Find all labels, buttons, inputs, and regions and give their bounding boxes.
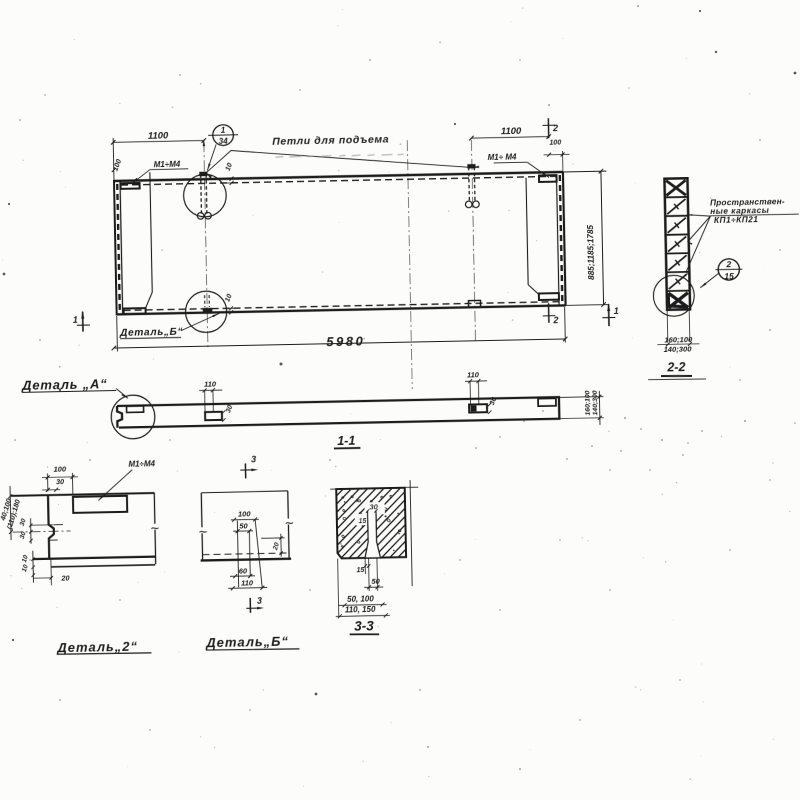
svg-text:1: 1 — [73, 315, 78, 325]
svg-text:15: 15 — [724, 271, 734, 281]
svg-text:50: 50 — [239, 521, 248, 530]
svg-text:1100: 1100 — [501, 126, 522, 137]
svg-text:110: 110 — [241, 578, 254, 587]
svg-text:140;300: 140;300 — [592, 390, 600, 415]
svg-text:М1÷ М4: М1÷ М4 — [488, 152, 518, 162]
svg-text:2: 2 — [552, 315, 558, 325]
svg-text:34: 34 — [219, 137, 229, 146]
svg-text:20: 20 — [60, 573, 69, 582]
svg-text:3: 3 — [251, 454, 256, 464]
svg-text:100: 100 — [549, 140, 561, 147]
svg-text:50: 50 — [371, 577, 380, 586]
svg-text:160;100: 160;100 — [664, 335, 693, 345]
svg-text:110: 110 — [467, 370, 480, 379]
svg-text:Деталь „А“: Деталь „А“ — [21, 376, 108, 393]
svg-text:3: 3 — [257, 596, 262, 606]
svg-text:100: 100 — [53, 465, 67, 474]
svg-text:Деталь„Б“: Деталь„Б“ — [205, 634, 289, 651]
svg-text:140;300: 140;300 — [663, 344, 692, 354]
svg-text:50, 100: 50, 100 — [347, 594, 374, 604]
svg-text:Петли для подъема: Петли для подъема — [272, 133, 389, 147]
svg-text:М1÷М4: М1÷М4 — [154, 160, 181, 170]
svg-text:2-2: 2-2 — [666, 360, 685, 374]
svg-text:885;1185;1785: 885;1185;1785 — [586, 224, 596, 280]
svg-text:1: 1 — [614, 306, 619, 316]
svg-text:110: 110 — [204, 379, 217, 388]
svg-text:15: 15 — [358, 518, 366, 525]
svg-text:М1÷М4: М1÷М4 — [128, 459, 155, 469]
svg-text:60: 60 — [239, 566, 248, 575]
svg-text:110, 150: 110, 150 — [345, 605, 376, 615]
svg-text:160;100: 160;100 — [584, 390, 592, 415]
svg-text:2: 2 — [725, 259, 731, 269]
svg-text:1-1: 1-1 — [337, 434, 355, 448]
svg-text:КП1÷КП21: КП1÷КП21 — [714, 214, 759, 225]
svg-text:5980: 5980 — [326, 333, 365, 349]
svg-text:15: 15 — [356, 567, 364, 574]
svg-text:2: 2 — [552, 123, 558, 133]
svg-text:30: 30 — [56, 477, 64, 486]
svg-text:1: 1 — [221, 126, 226, 135]
svg-text:Деталь„Б“: Деталь„Б“ — [119, 327, 184, 339]
svg-text:1100: 1100 — [148, 130, 169, 141]
svg-text:3-3: 3-3 — [354, 618, 374, 633]
